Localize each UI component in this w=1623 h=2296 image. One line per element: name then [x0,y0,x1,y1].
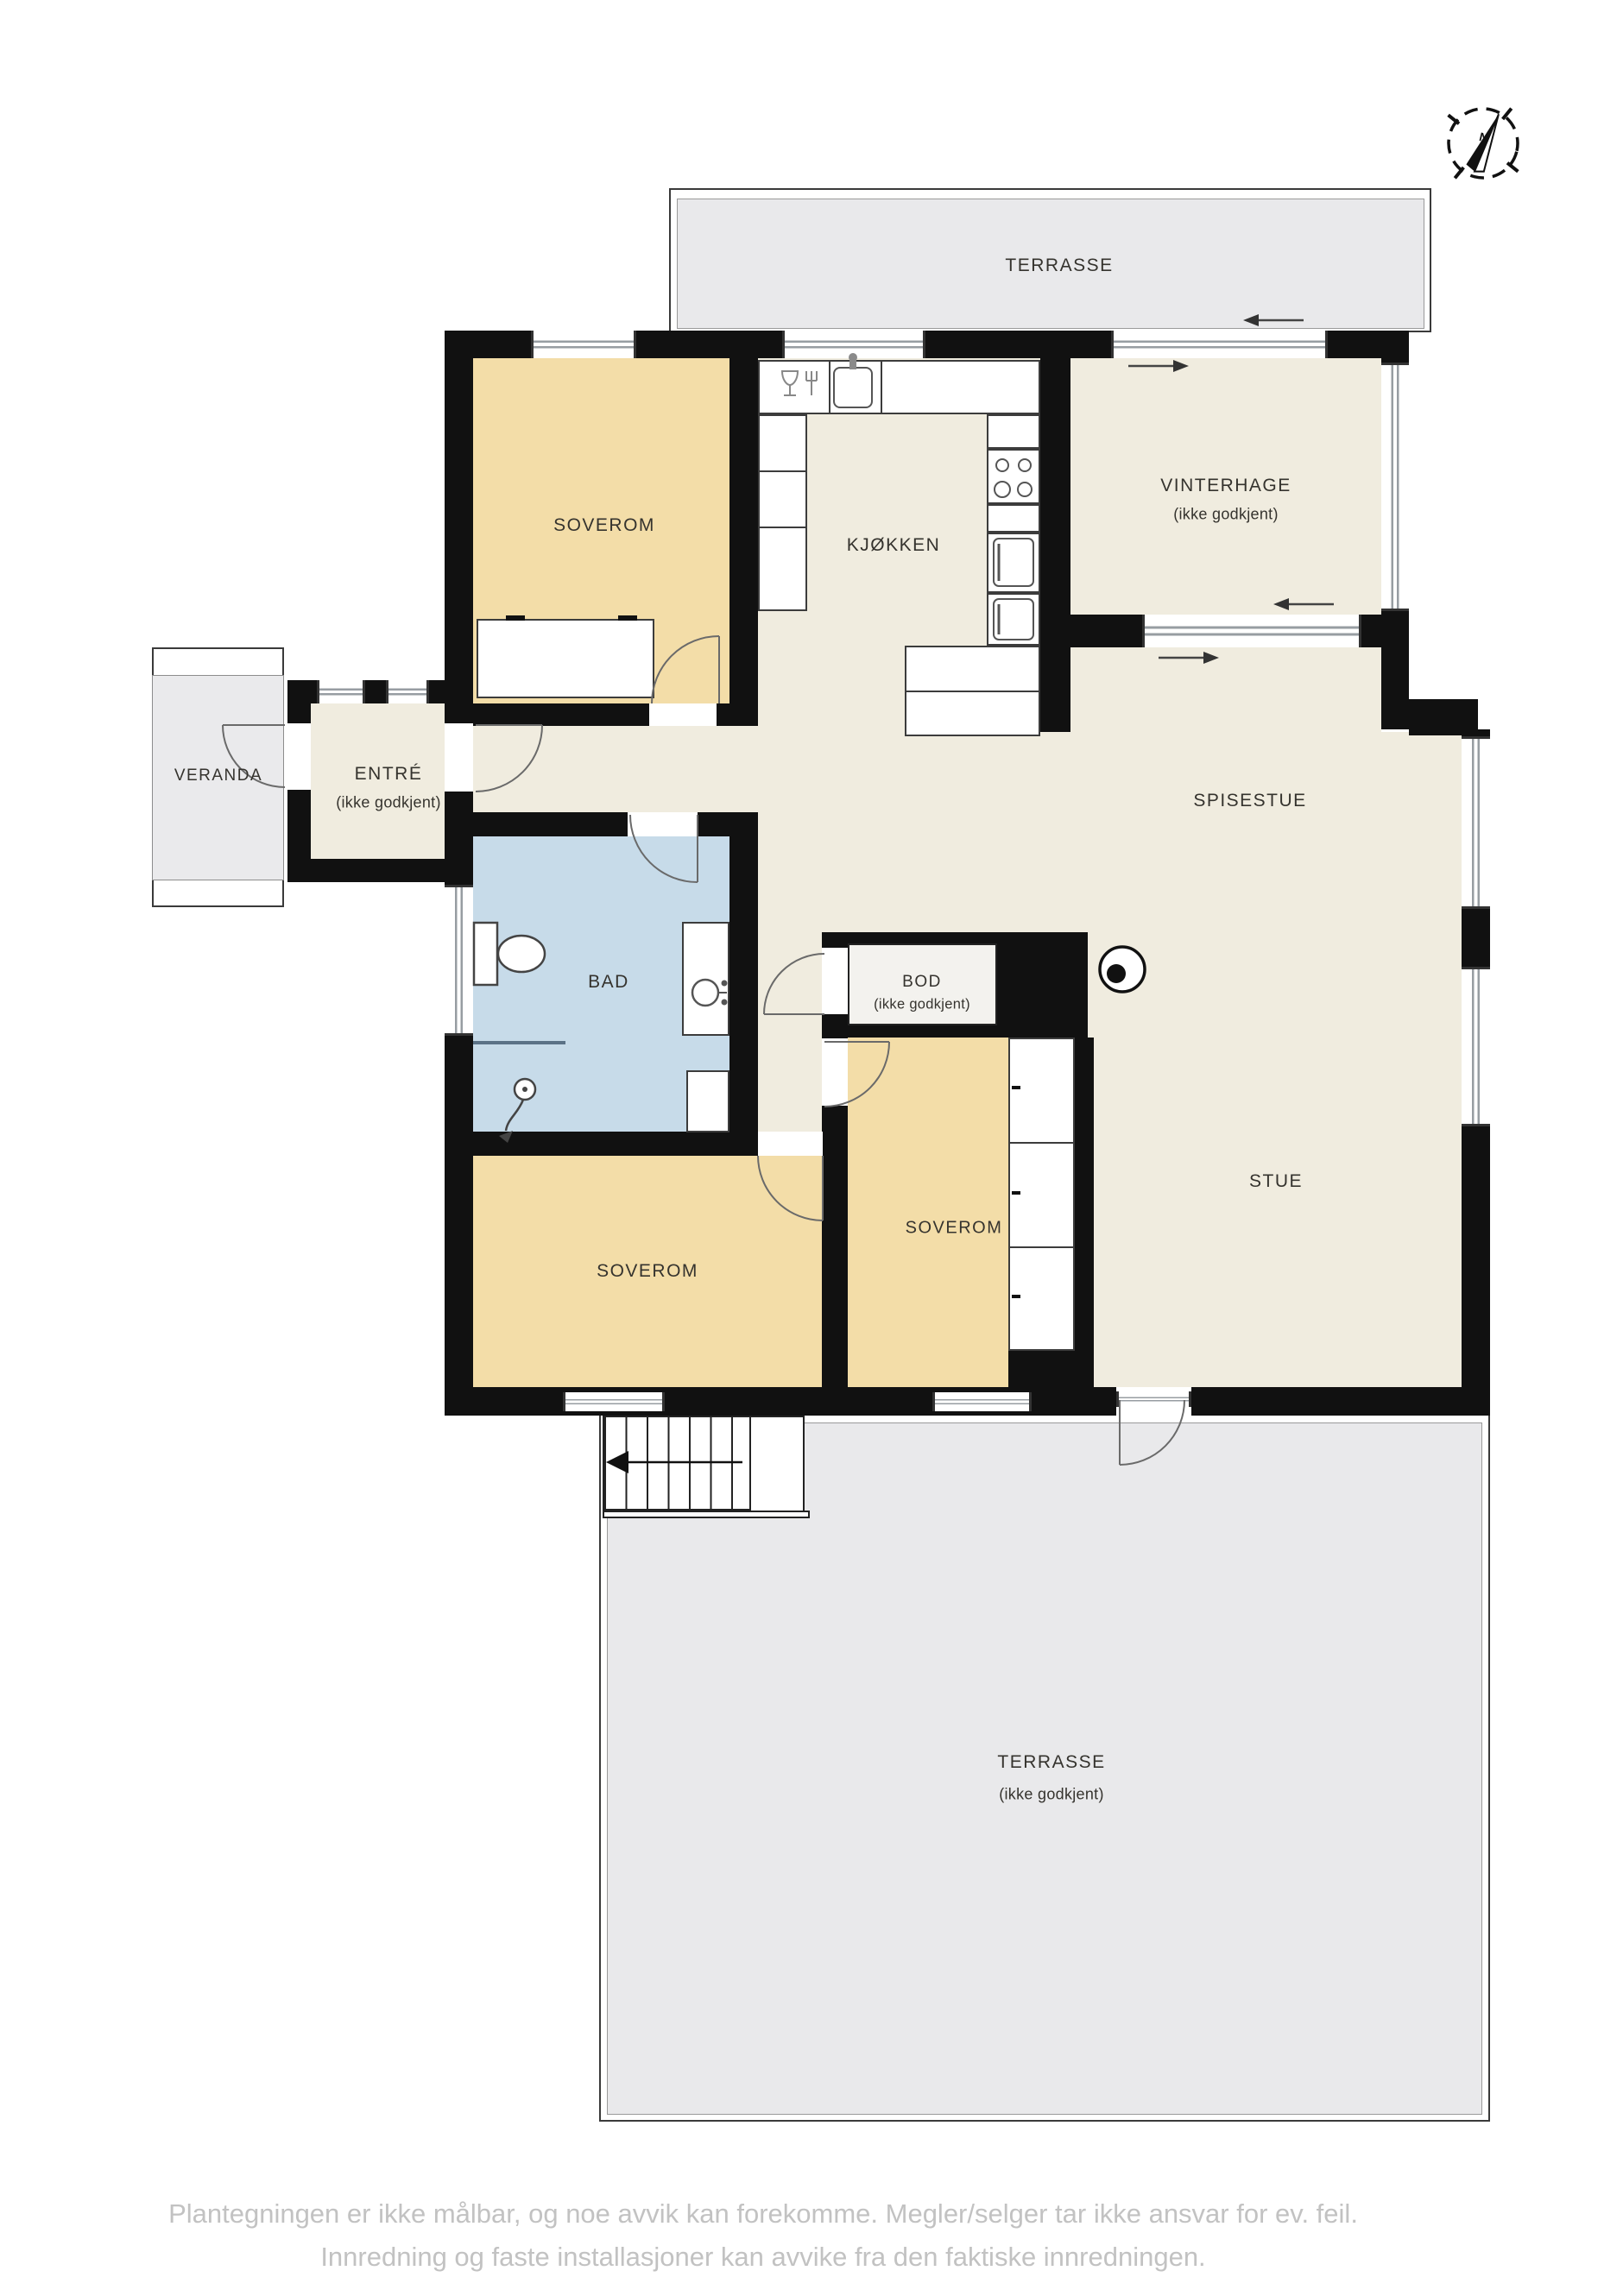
wall-entre-top [287,680,473,703]
label-stue: STUE [1249,1171,1303,1192]
room-spisestue-upper [1070,647,1381,732]
window [531,331,636,358]
label-spisestue: SPISESTUE [1193,791,1306,811]
stairs [603,1416,751,1511]
wardrobe-handle [506,615,525,621]
kitchen-counter [987,414,1040,449]
cabinet-divider [760,470,805,472]
room-spisestue-stue [1040,732,1462,1387]
kitchen-cabinet-left [758,414,807,611]
svg-text:N: N [1478,129,1490,145]
window [563,1392,665,1411]
wall-entre-bottom [287,859,473,882]
stairs-railing [603,1511,810,1518]
label-vinterhage: VINTERHAGE [1160,476,1291,496]
kitchen-counter-top [758,360,1040,414]
label-terrasse-top: TERRASSE [1005,255,1113,276]
label-bod: BOD [902,973,942,992]
hall [473,726,1040,812]
bathroom-vanity [682,922,729,1036]
wall-under-wardrobe [1008,1351,1075,1387]
door-gap-veranda [287,723,311,790]
wall-soverom-kitchen [729,358,758,726]
bathroom-cabinet [686,1070,729,1132]
disclaimer: Plantegningen er ikke målbar, og noe avv… [0,2192,1526,2279]
wardrobe-rod [1012,1086,1020,1089]
label-entre-sub: (ikke godkjent) [336,794,441,812]
window [932,1392,1032,1411]
oven [987,533,1040,593]
wall-bad-top [473,812,758,836]
label-terrasse-bottom-sub: (ikke godkjent) [999,1786,1104,1804]
hall-passage [754,932,822,1132]
door-gap-soverom-tl [649,703,717,726]
label-soverom-bl: SOVEROM [597,1261,698,1282]
compass-icon: N [1434,94,1532,192]
label-bod-sub: (ikke godkjent) [874,997,970,1013]
counter-divider [906,691,1039,692]
wall-soverom-mid-right [1075,1038,1094,1416]
counter-divider [829,362,830,413]
label-terrasse-bottom: TERRASSE [997,1752,1105,1773]
wardrobe-rod [1012,1295,1020,1298]
wardrobe-divider [1010,1246,1073,1248]
label-bad: BAD [588,972,629,993]
label-soverom-tl: SOVEROM [553,515,655,536]
sliding-door [1111,331,1328,358]
door-gap-bad [628,812,698,836]
wall-bod-top [822,932,997,943]
window [782,331,925,358]
window [1381,363,1409,611]
door-gap-entre-hall [445,723,473,792]
label-vinterhage-sub: (ikke godkjent) [1173,506,1279,524]
wall-bod-bottom [822,1025,997,1038]
floor-plan-page: N [0,0,1623,2296]
window [445,885,473,1036]
window [1462,736,1490,909]
door-gap-soverom-mid [822,1038,848,1106]
door-gap-soverom-bl [758,1132,823,1156]
stairs-landing [749,1416,805,1512]
disclaimer-line-1: Plantegningen er ikke målbar, og noe avv… [0,2192,1526,2236]
cabinet-divider [760,527,805,528]
label-veranda: VERANDA [174,766,262,785]
wardrobe-rod [1012,1191,1020,1195]
label-kjokken: KJØKKEN [847,535,941,556]
wardrobe-divider [1010,1142,1073,1144]
window [386,680,429,703]
window [317,680,365,703]
counter-divider [881,362,882,413]
kitchen-counter [987,504,1040,533]
label-entre: ENTRÉ [355,764,423,785]
dishwasher [987,593,1040,646]
disclaimer-line-2: Innredning og faste installasjoner kan a… [0,2236,1526,2279]
wall-bad-right [729,812,758,1156]
wardrobe [477,619,654,698]
hall-mid [754,812,1040,932]
wall-bod-chunk [997,932,1088,1038]
door-gap-bod [822,948,848,1014]
window [1462,967,1490,1126]
wall-kitchen-right [1040,331,1070,732]
label-soverom-mid: SOVEROM [906,1219,1003,1239]
sliding-door [1142,615,1361,647]
wardrobe-handle [618,615,637,621]
stove [987,449,1040,504]
door-threshold [1116,1391,1191,1407]
